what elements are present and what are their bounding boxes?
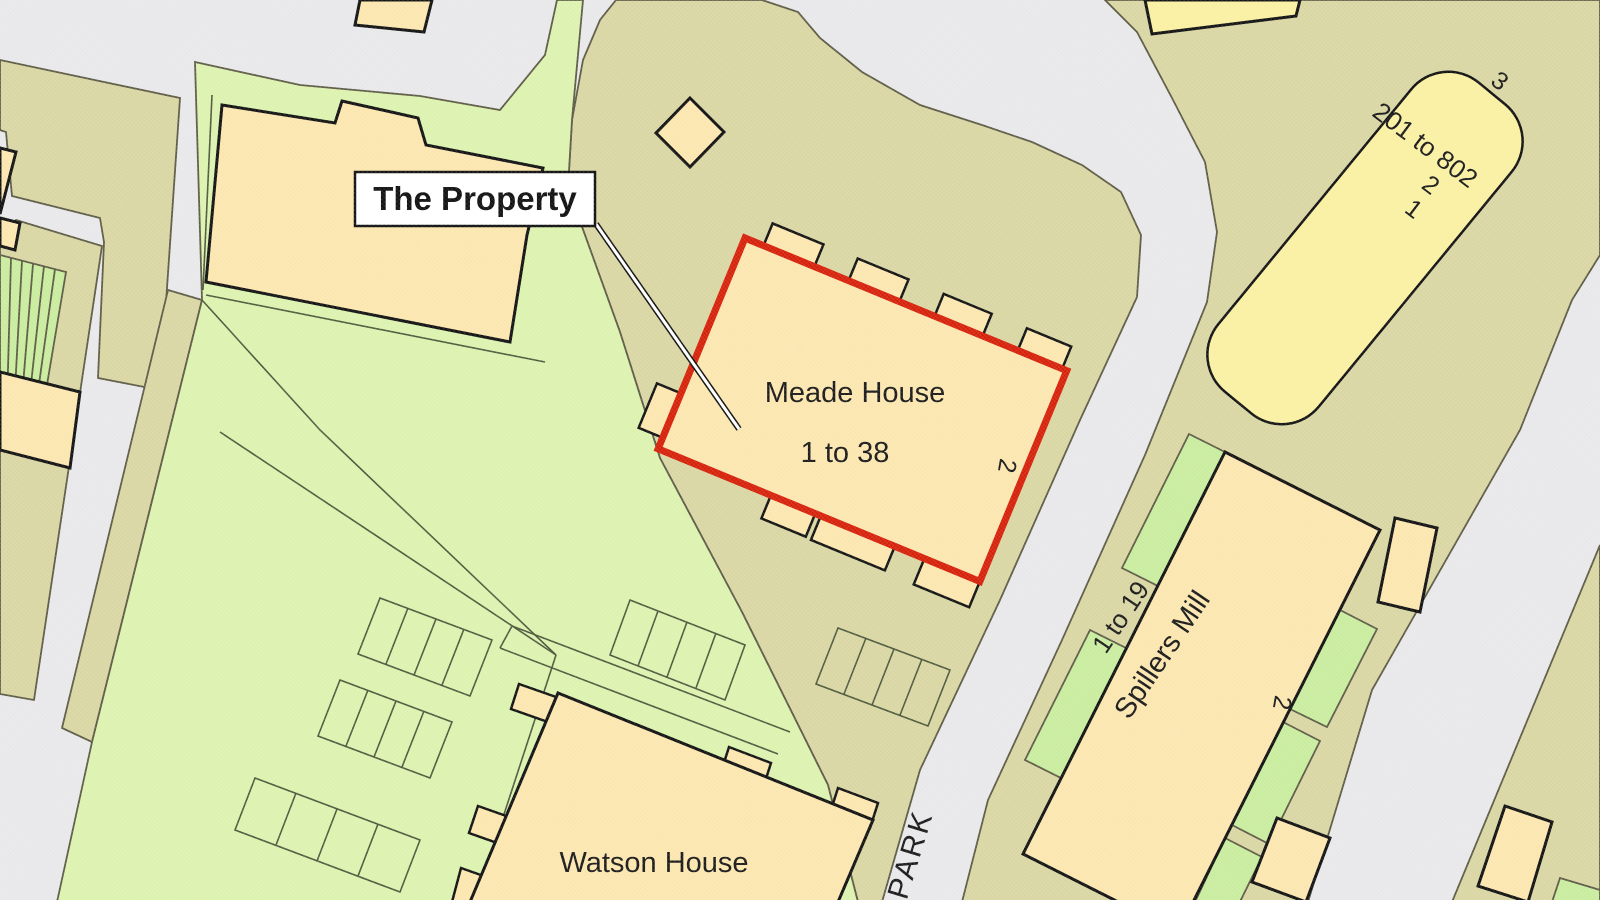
site-plan-map: Meade House 1 to 38 2 Watson House 1 to … <box>0 0 1600 900</box>
meade-house-label: Meade House <box>765 377 946 409</box>
watson-house-label: Watson House <box>559 847 748 879</box>
building-left-square <box>0 218 20 250</box>
callout-box: The Property <box>355 172 595 226</box>
the-property-label: The Property <box>373 180 577 217</box>
meade-units-label: 1 to 38 <box>801 437 890 469</box>
map-canvas: Meade House 1 to 38 2 Watson House 1 to … <box>0 0 1600 900</box>
building-top-small <box>355 0 432 32</box>
